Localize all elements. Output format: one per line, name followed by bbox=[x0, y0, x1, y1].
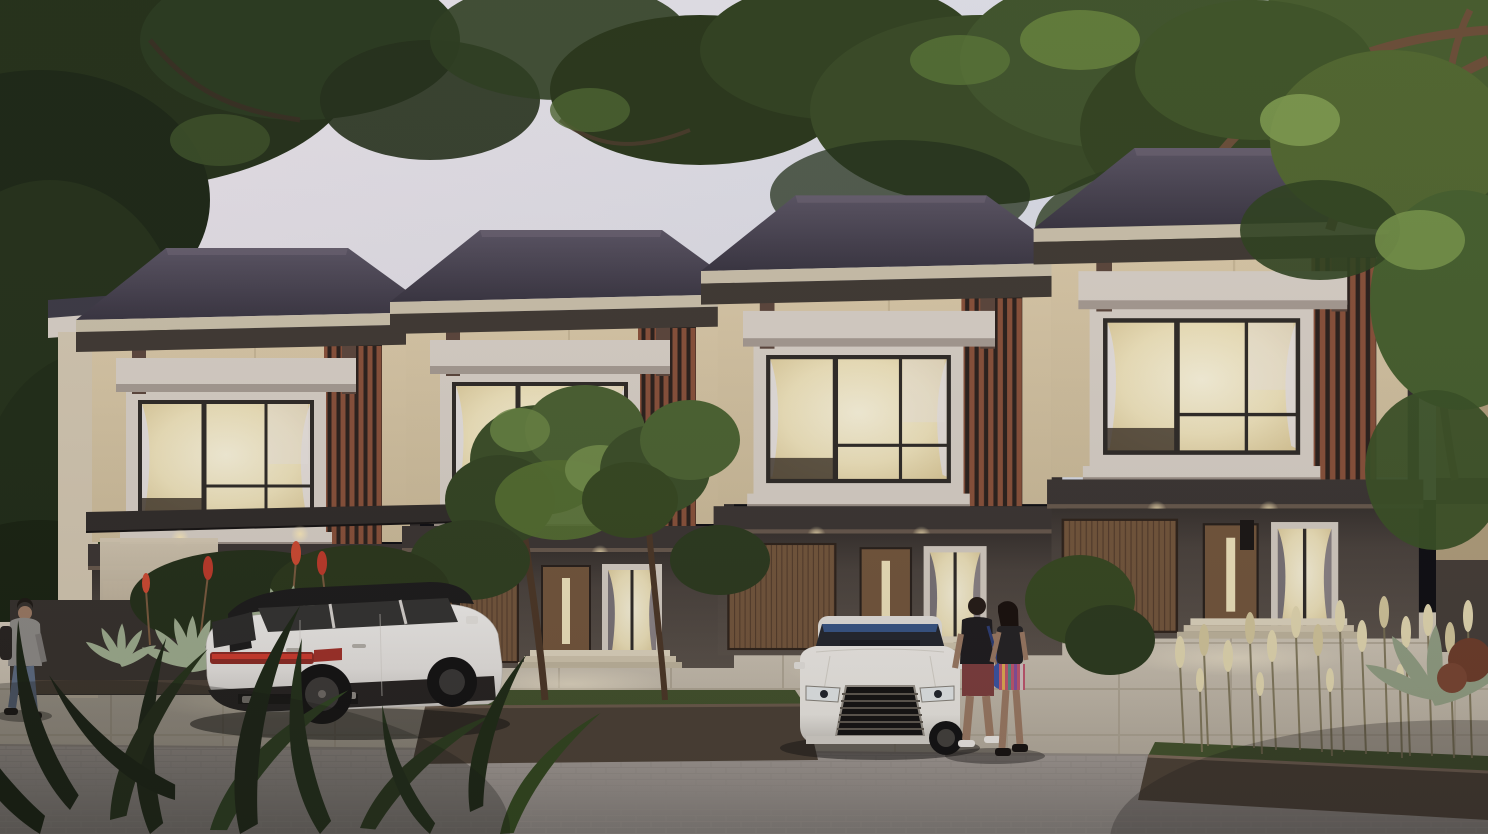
ambience-overlays bbox=[0, 0, 1488, 834]
architectural-rendering bbox=[0, 0, 1488, 834]
architectural-rendering-stage: Dusk architectural rendering of a modern… bbox=[0, 0, 1488, 834]
